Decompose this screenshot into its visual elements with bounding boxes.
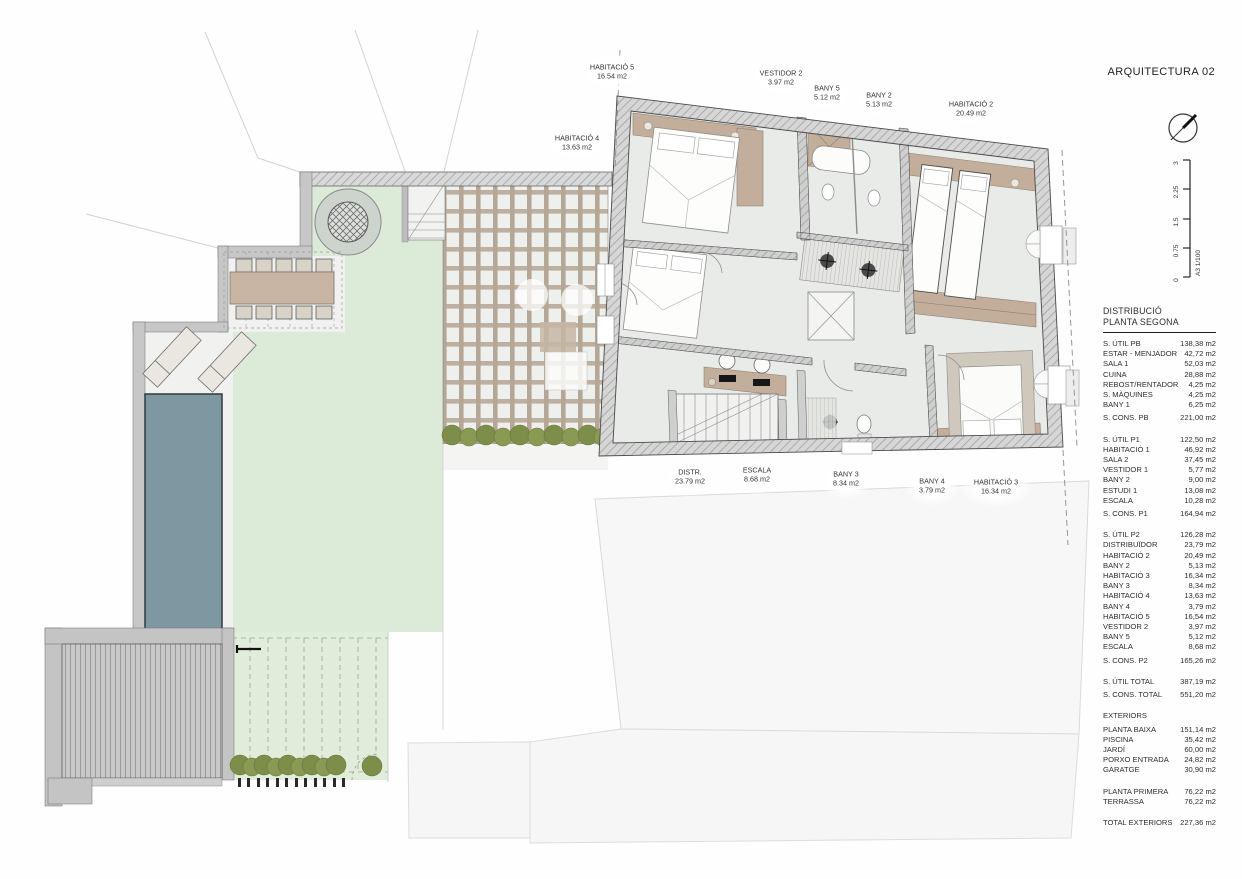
scale-tick: 3 (1173, 161, 1180, 165)
schedule-row: BANY 16,25 m2 (1103, 400, 1216, 410)
schedule-rule (1103, 332, 1216, 333)
dining-table (224, 252, 342, 328)
bed-double-hab3 (946, 351, 1035, 442)
schedule-row: S. CONS. PB221,00 m2 (1103, 413, 1216, 423)
room-label-distribuidor: DISTR.23.79 m2 (660, 457, 720, 498)
schedule-row: PORXO ENTRADA24,82 m2 (1103, 755, 1216, 765)
room-label-habitacio3: HABITACIÓ 316.34 m2 (959, 467, 1033, 508)
schedule-heading-line1: DISTRIBUCIÓ (1103, 306, 1216, 317)
area-schedule: DISTRIBUCIÓ PLANTA SEGONA S. ÚTIL PB138,… (1103, 306, 1216, 828)
garage-deck (45, 628, 234, 806)
schedule-row: S. CONS. P2165,26 m2 (1103, 656, 1216, 666)
room-label-bany5: BANY 55.12 m2 (799, 73, 855, 114)
tree-symbol (315, 189, 381, 255)
room-label-habitacio4: HABITACIÓ 413.63 m2 (540, 123, 614, 164)
outdoor-stair (402, 182, 445, 242)
schedule-row-total: TOTAL EXTERIORS227,36 m2 (1103, 818, 1216, 828)
scale-tick: 0.75 (1173, 244, 1180, 257)
room-label-escala: ESCALA8.68 m2 (728, 455, 786, 496)
schedule-row: REBOST/RENTADOR4,25 m2 (1103, 380, 1216, 390)
schedule-row: VESTIDOR 15,77 m2 (1103, 465, 1216, 475)
schedule-row: SALA 237,45 m2 (1103, 455, 1216, 465)
schedule-row: CUINA28,88 m2 (1103, 370, 1216, 380)
scale-label: A3 1/100 (1195, 250, 1202, 276)
room-label-habitacio2: HABITACIÓ 220.49 m2 (934, 89, 1008, 130)
schedule-row-exteriors-header: EXTERIORS (1103, 711, 1216, 721)
room-label-bany2: BANY 25.13 m2 (851, 80, 907, 121)
swimming-pool (145, 394, 222, 634)
schedule-heading-line2: PLANTA SEGONA (1103, 317, 1216, 328)
schedule-row: S. MÀQUINES4,25 m2 (1103, 390, 1216, 400)
schedule-row: BANY 29,00 m2 (1103, 475, 1216, 485)
drawing-sheet: 3 2.25 1.5 0.75 0 A3 1/100 HABITACIÓ 516… (0, 0, 1242, 879)
schedule-row: BANY 55,12 m2 (1103, 632, 1216, 642)
scale-tick: 1.5 (1173, 217, 1180, 226)
schedule-row: GARATGE30,90 m2 (1103, 765, 1216, 775)
schedule-row: S. ÚTIL P2126,28 m2 (1103, 530, 1216, 540)
schedule-row: HABITACIÓ 316,34 m2 (1103, 571, 1216, 581)
schedule-row: S. ÚTIL PB138,38 m2 (1103, 339, 1216, 349)
bed-double-hab5 (642, 127, 739, 233)
schedule-row: HABITACIÓ 146,92 m2 (1103, 445, 1216, 455)
schedule-row: HABITACIÓ 413,63 m2 (1103, 591, 1216, 601)
schedule-row: VESTIDOR 23,97 m2 (1103, 622, 1216, 632)
schedule-row: BANY 38,34 m2 (1103, 581, 1216, 591)
floor-plan-svg: 3 2.25 1.5 0.75 0 A3 1/100 (0, 0, 1242, 879)
schedule-row: ESCALA8,68 m2 (1103, 642, 1216, 652)
schedule-row: SALA 152,03 m2 (1103, 359, 1216, 369)
scale-tick: 2.25 (1173, 185, 1180, 198)
bed-double-hab4 (623, 246, 707, 338)
schedule-row: S. ÚTIL P1122,50 m2 (1103, 435, 1216, 445)
schedule-row: S. ÚTIL TOTAL387,19 m2 (1103, 677, 1216, 687)
garden-layer (45, 172, 612, 806)
stairwell (674, 394, 778, 444)
schedule-row: JARDÍ60,00 m2 (1103, 745, 1216, 755)
schedule-row: TERRASSA76,22 m2 (1103, 797, 1216, 807)
pergola-grid (443, 176, 608, 470)
schedule-row: HABITACIÓ 516,54 m2 (1103, 612, 1216, 622)
schedule-row: S. CONS. P1164,94 m2 (1103, 509, 1216, 519)
room-label-bany3: BANY 38.34 m2 (818, 459, 874, 500)
scale-tick: 0 (1173, 278, 1180, 282)
schedule-row: PISCINA35,42 m2 (1103, 735, 1216, 745)
schedule-row: ESTAR - MENJADOR42,72 m2 (1103, 349, 1216, 359)
schedule-row: HABITACIÓ 220,49 m2 (1103, 551, 1216, 561)
schedule-row: ESCALA10,28 m2 (1103, 496, 1216, 506)
schedule-row: BANY 43,79 m2 (1103, 602, 1216, 612)
schedule-row: BANY 25,13 m2 (1103, 561, 1216, 571)
room-label-habitacio5: HABITACIÓ 516.54 m2 (575, 52, 649, 93)
north-compass-icon (1169, 114, 1197, 142)
schedule-row: PLANTA PRIMERA76,22 m2 (1103, 787, 1216, 797)
schedule-row: DISTRIBUÏDOR23,79 m2 (1103, 540, 1216, 550)
sheet-title: ARQUITECTURA 02 (1103, 66, 1215, 78)
schedule-row: PLANTA BAIXA151,14 m2 (1103, 725, 1216, 735)
room-label-bany4: BANY 43.79 m2 (904, 466, 960, 507)
schedule-row: ESTUDI 113,08 m2 (1103, 486, 1216, 496)
schedule-row: S. CONS. TOTAL551,20 m2 (1103, 690, 1216, 700)
scale-bar: 3 2.25 1.5 0.75 0 A3 1/100 (1173, 160, 1202, 282)
